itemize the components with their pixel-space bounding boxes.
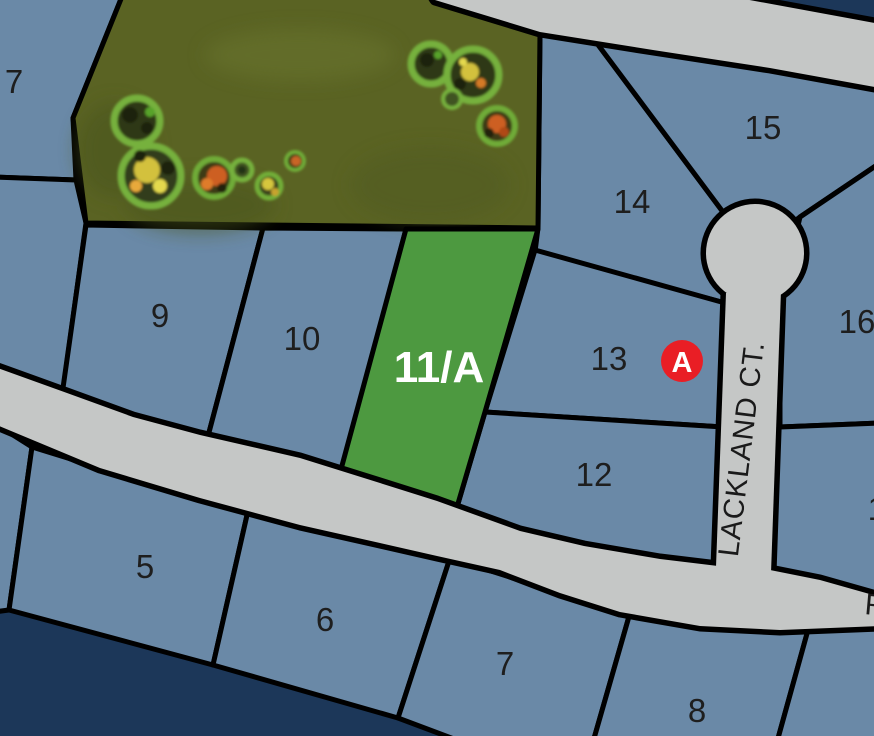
lot-7-lower-label: 7 [496, 645, 514, 682]
lot-11a-label: 11/A [394, 343, 485, 392]
lot-13-label: 13 [591, 340, 628, 377]
lot-5-label: 5 [136, 548, 154, 585]
marker-a-label: A [672, 347, 693, 379]
lot-14-label: 14 [614, 183, 651, 220]
wooded-parcel[interactable] [73, 0, 540, 233]
marker-a[interactable]: A [661, 340, 703, 382]
lot-7-upper-label: 7 [5, 63, 23, 100]
street-name-partial-right: R [863, 588, 874, 623]
lot-17-partial-label: 17 [868, 490, 874, 527]
plat-map: 7 9 10 13 14 15 16 17 12 5 6 7 8 11/A LA… [0, 0, 874, 736]
road-cul-de-sac [706, 204, 804, 302]
lot-15-label: 15 [745, 109, 782, 146]
lot-16-label: 16 [839, 303, 874, 340]
lot-6-label: 6 [316, 601, 334, 638]
lot-10-label: 10 [284, 320, 321, 357]
lot-12-label: 12 [576, 456, 613, 493]
lot-8-label: 8 [688, 692, 706, 729]
lot-9-label: 9 [151, 297, 169, 334]
plat-map-canvas: 7 9 10 13 14 15 16 17 12 5 6 7 8 11/A LA… [0, 0, 874, 736]
